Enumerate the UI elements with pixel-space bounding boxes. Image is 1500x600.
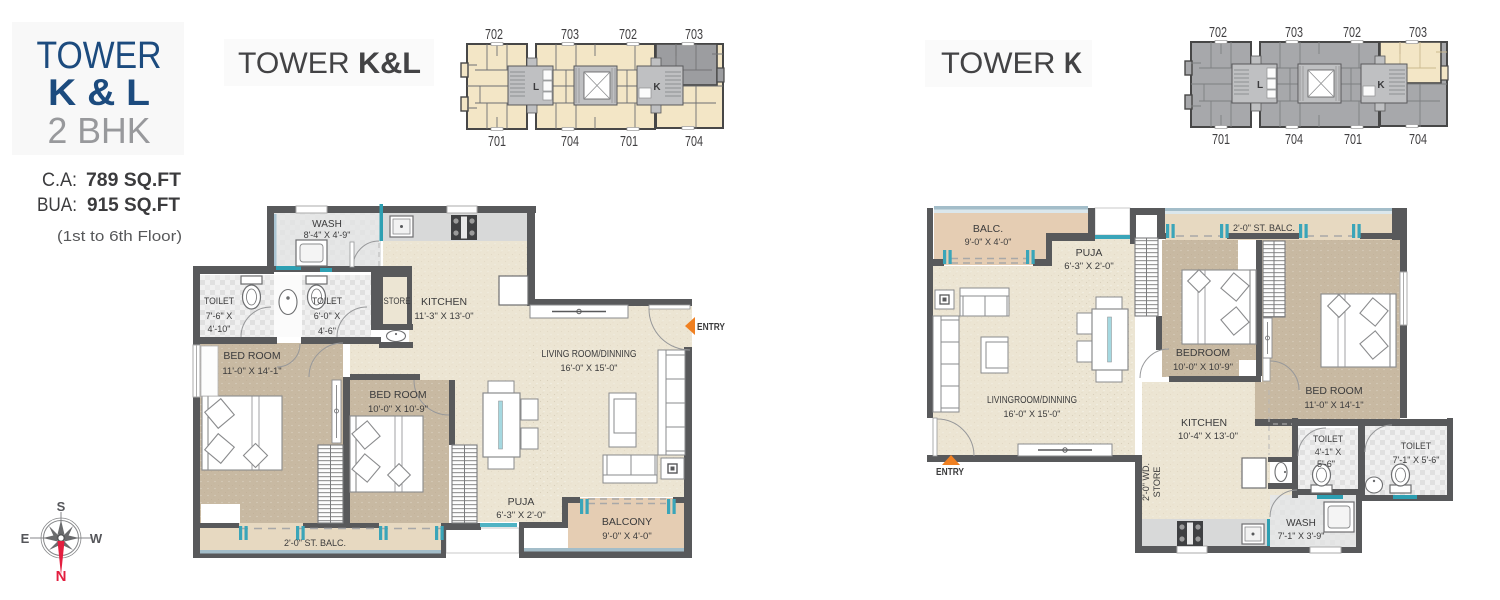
svg-text:WASH: WASH [312, 219, 342, 230]
svg-text:703: 703 [1285, 24, 1303, 41]
svg-text:9'-0" X 4'-0": 9'-0" X 4'-0" [602, 531, 651, 542]
svg-text:704: 704 [561, 133, 579, 150]
svg-text:4'-1" X: 4'-1" X [1315, 447, 1341, 457]
svg-text:LIVING ROOM/DINNING: LIVING ROOM/DINNING [542, 348, 637, 360]
svg-text:11'-0" X 14'-1": 11'-0" X 14'-1" [222, 366, 281, 377]
svg-text:KITCHEN: KITCHEN [421, 296, 467, 308]
svg-text:6'-3" X 2'-0": 6'-3" X 2'-0" [496, 510, 545, 521]
svg-text:7'-1" X 3'-9": 7'-1" X 3'-9" [1278, 531, 1325, 541]
svg-text:703: 703 [561, 26, 579, 43]
svg-text:10'-0" X 10'-9": 10'-0" X 10'-9" [1173, 362, 1233, 373]
svg-text:9'-0" X 4'-0": 9'-0" X 4'-0" [965, 237, 1012, 247]
svg-text:4'-10": 4'-10" [208, 324, 231, 334]
svg-text:702: 702 [619, 26, 637, 43]
svg-text:5'-6": 5'-6" [1317, 459, 1335, 469]
svg-text:W: W [90, 531, 103, 546]
svg-text:2 BHK: 2 BHK [48, 110, 151, 151]
svg-text:K & L: K & L [48, 72, 150, 113]
svg-text:701: 701 [1344, 131, 1362, 148]
svg-text:6'-3" X 2'-0": 6'-3" X 2'-0" [1064, 261, 1113, 272]
svg-text:704: 704 [685, 133, 703, 150]
svg-text:704: 704 [1285, 131, 1303, 148]
svg-text:STORE: STORE [384, 296, 411, 307]
svg-text:BED ROOM: BED ROOM [223, 350, 280, 362]
svg-text:915 SQ.FT: 915 SQ.FT [87, 195, 180, 216]
svg-text:TOILET: TOILET [312, 296, 342, 307]
svg-text:PUJA: PUJA [1076, 247, 1103, 259]
svg-text:11'-0" X 14'-1": 11'-0" X 14'-1" [1304, 400, 1363, 411]
svg-text:7'-6" X: 7'-6" X [206, 311, 232, 321]
svg-text:789 SQ.FT: 789 SQ.FT [86, 170, 181, 191]
svg-text:K: K [653, 82, 661, 93]
svg-text:703: 703 [1409, 24, 1427, 41]
svg-text:LIVINGROOM/DINNING: LIVINGROOM/DINNING [987, 394, 1077, 406]
svg-text:2'-0" ST. BALC.: 2'-0" ST. BALC. [284, 538, 346, 548]
svg-text:KITCHEN: KITCHEN [1181, 417, 1227, 429]
svg-text:6'-0" X: 6'-0" X [314, 311, 340, 321]
svg-text:STORE: STORE [1152, 467, 1162, 498]
svg-text:2'-0" ST. BALC.: 2'-0" ST. BALC. [1233, 223, 1295, 233]
svg-text:L: L [533, 82, 539, 93]
svg-text:L: L [1257, 80, 1263, 91]
svg-text:C.A:: C.A: [42, 170, 77, 191]
svg-text:701: 701 [620, 133, 638, 150]
svg-text:E: E [21, 531, 30, 546]
svg-text:S: S [57, 499, 66, 514]
svg-text:N: N [56, 568, 67, 585]
svg-text:TOILET: TOILET [204, 296, 234, 307]
svg-text:702: 702 [485, 26, 503, 43]
svg-text:WASH: WASH [1286, 518, 1316, 529]
svg-text:(1st to 6th Floor): (1st to 6th Floor) [57, 228, 182, 245]
svg-text:TOWER K&L: TOWER K&L [238, 47, 421, 80]
svg-text:BALC.: BALC. [973, 223, 1003, 235]
svg-text:ENTRY: ENTRY [936, 467, 964, 478]
svg-text:BEDROOM: BEDROOM [1176, 347, 1230, 359]
svg-text:8'-4" X 4'-9": 8'-4" X 4'-9" [304, 230, 351, 240]
svg-text:TOWER K: TOWER K [941, 47, 1082, 80]
svg-text:16'-0" X 15'-0": 16'-0" X 15'-0" [561, 363, 618, 374]
svg-text:TOWER: TOWER [37, 35, 162, 77]
svg-text:PUJA: PUJA [508, 496, 535, 508]
svg-text:BUA:: BUA: [37, 195, 77, 216]
svg-text:7'-1" X 5'-6": 7'-1" X 5'-6" [1393, 455, 1440, 465]
svg-text:2'-0" WD.: 2'-0" WD. [1141, 463, 1151, 501]
svg-text:702: 702 [1209, 24, 1227, 41]
svg-text:ENTRY: ENTRY [697, 322, 725, 333]
svg-text:701: 701 [488, 133, 506, 150]
svg-text:703: 703 [685, 26, 703, 43]
svg-text:701: 701 [1212, 131, 1230, 148]
svg-text:10'-4" X 13'-0": 10'-4" X 13'-0" [1178, 431, 1238, 442]
svg-text:BED ROOM: BED ROOM [1305, 385, 1362, 397]
svg-text:BED ROOM: BED ROOM [369, 389, 426, 401]
svg-text:4'-6": 4'-6" [318, 326, 336, 336]
svg-text:16'-0" X 15'-0": 16'-0" X 15'-0" [1004, 409, 1061, 420]
svg-text:704: 704 [1409, 131, 1427, 148]
svg-text:702: 702 [1343, 24, 1361, 41]
svg-text:TOILET: TOILET [1313, 434, 1343, 445]
svg-text:10'-0" X 10'-9": 10'-0" X 10'-9" [368, 404, 428, 415]
svg-text:K: K [1377, 80, 1385, 91]
svg-text:11'-3" X 13'-0": 11'-3" X 13'-0" [414, 311, 473, 322]
svg-text:BALCONY: BALCONY [602, 516, 652, 528]
svg-text:TOILET: TOILET [1401, 441, 1431, 452]
